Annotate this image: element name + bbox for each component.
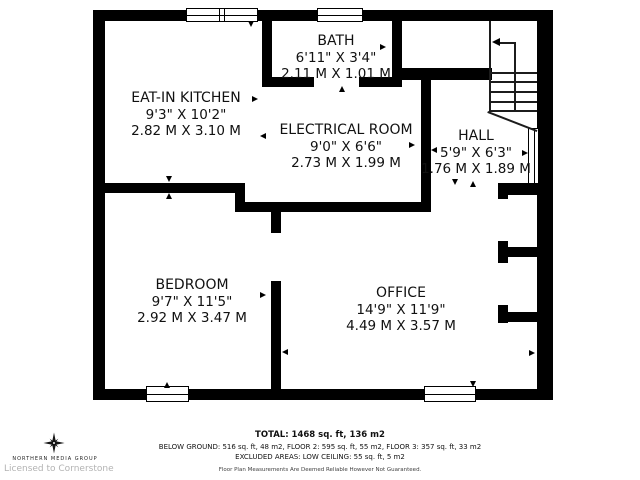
measurement-tick-icon — [470, 181, 476, 187]
room-dimensions-metric: 2.11 M X 1.01 M — [281, 66, 391, 83]
room-name: EAT-IN KITCHEN — [131, 90, 241, 107]
room-dimensions-imperial: 6'11" X 3'4" — [281, 50, 391, 67]
measurement-tick-icon — [260, 133, 266, 139]
room-name: BEDROOM — [137, 277, 247, 294]
room-name: HALL — [421, 128, 531, 145]
wall-kitchen-bottom — [105, 183, 245, 193]
measurement-tick-icon — [266, 42, 272, 48]
room-name: ELECTRICAL ROOM — [279, 122, 412, 139]
company-name: NORTHERN MEDIA GROUP — [8, 456, 102, 462]
room-dimensions-metric: 2.92 M X 3.47 M — [137, 310, 247, 327]
room-dimensions-imperial: 5'9" X 6'3" — [421, 145, 531, 162]
room-name: OFFICE — [346, 285, 456, 302]
measurement-tick-icon — [99, 96, 105, 102]
wall-stair-landing — [392, 68, 492, 80]
room-dimensions-imperial: 9'3" X 10'2" — [131, 107, 241, 124]
bath-window — [317, 8, 363, 22]
measurement-tick-icon — [252, 96, 258, 102]
stair-direction-arrow-icon — [492, 38, 500, 46]
room-dimensions-imperial: 9'7" X 11'5" — [137, 294, 247, 311]
wall-stub3-bar — [506, 312, 538, 322]
wall-stub2-bar — [506, 247, 538, 257]
measurement-tick-icon — [260, 292, 266, 298]
wall-lower — [235, 202, 431, 212]
measurement-tick-icon — [452, 73, 458, 79]
total-area-text: TOTAL: 1468 sq. ft, 136 m2 — [0, 431, 640, 441]
measurement-tick-icon — [248, 21, 254, 27]
measurement-tick-icon — [529, 350, 535, 356]
room-label-bath: BATH 6'11" X 3'4" 2.11 M X 1.01 M — [281, 33, 391, 83]
measurement-tick-icon — [164, 382, 170, 388]
measurement-tick-icon — [166, 176, 172, 182]
office-window — [424, 386, 476, 402]
room-dimensions-imperial: 9'0" X 6'6" — [279, 139, 412, 156]
room-dimensions-metric: 1.76 M X 1.89 M — [421, 161, 531, 178]
measurement-tick-icon — [166, 193, 172, 199]
room-label-hall: HALL 5'9" X 6'3" 1.76 M X 1.89 M — [421, 128, 531, 178]
floor-plan: EAT-IN KITCHEN 9'3" X 10'2" 2.82 M X 3.1… — [0, 0, 640, 480]
room-label-electrical: ELECTRICAL ROOM 9'0" X 6'6" 2.73 M X 1.9… — [279, 122, 412, 172]
license-text: Licensed to Cornerstone — [4, 464, 114, 474]
stairwell-edge-line — [489, 21, 491, 112]
room-name: BATH — [281, 33, 391, 50]
measurement-tick-icon — [470, 381, 476, 387]
wall-right — [537, 10, 553, 400]
floor-areas-text: BELOW GROUND: 516 sq. ft, 48 m2, FLOOR 2… — [0, 443, 640, 451]
measurement-tick-icon — [452, 179, 458, 185]
room-label-office: OFFICE 14'9" X 11'9" 4.49 M X 3.57 M — [346, 285, 456, 335]
room-label-bedroom: BEDROOM 9'7" X 11'5" 2.92 M X 3.47 M — [137, 277, 247, 327]
measurement-tick-icon — [99, 291, 105, 297]
wall-left — [93, 10, 105, 400]
stair-direction-line — [500, 42, 516, 44]
room-label-kitchen: EAT-IN KITCHEN 9'3" X 10'2" 2.82 M X 3.1… — [131, 90, 241, 140]
wall-divider-top — [271, 212, 281, 233]
compass-star-icon — [43, 432, 65, 454]
room-dimensions-metric: 2.73 M X 1.99 M — [279, 155, 412, 172]
bedroom-window — [146, 386, 189, 402]
wall-stub1-bar — [506, 183, 538, 195]
stair-center-line — [514, 43, 516, 112]
kitchen-window — [186, 8, 258, 22]
room-dimensions-metric: 2.82 M X 3.10 M — [131, 123, 241, 140]
wall-divider-bottom — [271, 281, 281, 389]
room-dimensions-metric: 4.49 M X 3.57 M — [346, 318, 456, 335]
measurement-tick-icon — [282, 349, 288, 355]
measurement-tick-icon — [339, 86, 345, 92]
room-dimensions-imperial: 14'9" X 11'9" — [346, 302, 456, 319]
